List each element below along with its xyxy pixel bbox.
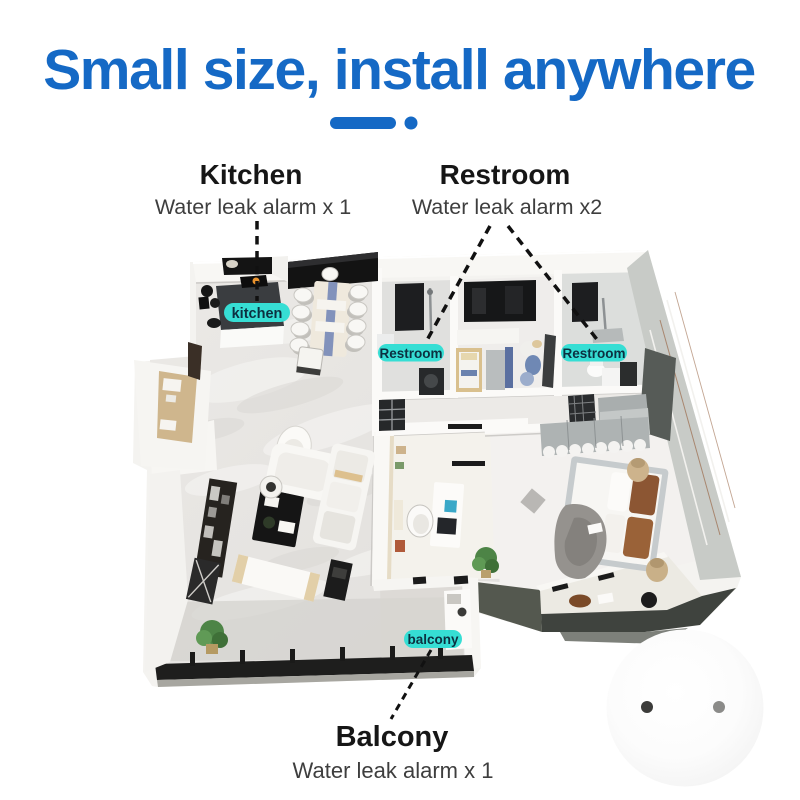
svg-text:Restroom: Restroom (379, 346, 442, 361)
svg-text:Restroom: Restroom (562, 346, 625, 361)
svg-text:Water leak alarm x 1: Water leak alarm x 1 (155, 195, 351, 219)
svg-text:balcony: balcony (407, 632, 459, 647)
svg-text:Water leak alarm x2: Water leak alarm x2 (412, 195, 602, 219)
svg-text:Kitchen: Kitchen (200, 159, 303, 190)
svg-text:Water leak alarm x 1: Water leak alarm x 1 (293, 758, 494, 783)
svg-text:Restroom: Restroom (440, 159, 571, 190)
svg-text:kitchen: kitchen (232, 306, 283, 322)
svg-text:Balcony: Balcony (336, 721, 449, 753)
svg-text:Small size, install anywhere: Small size, install anywhere (43, 38, 755, 102)
